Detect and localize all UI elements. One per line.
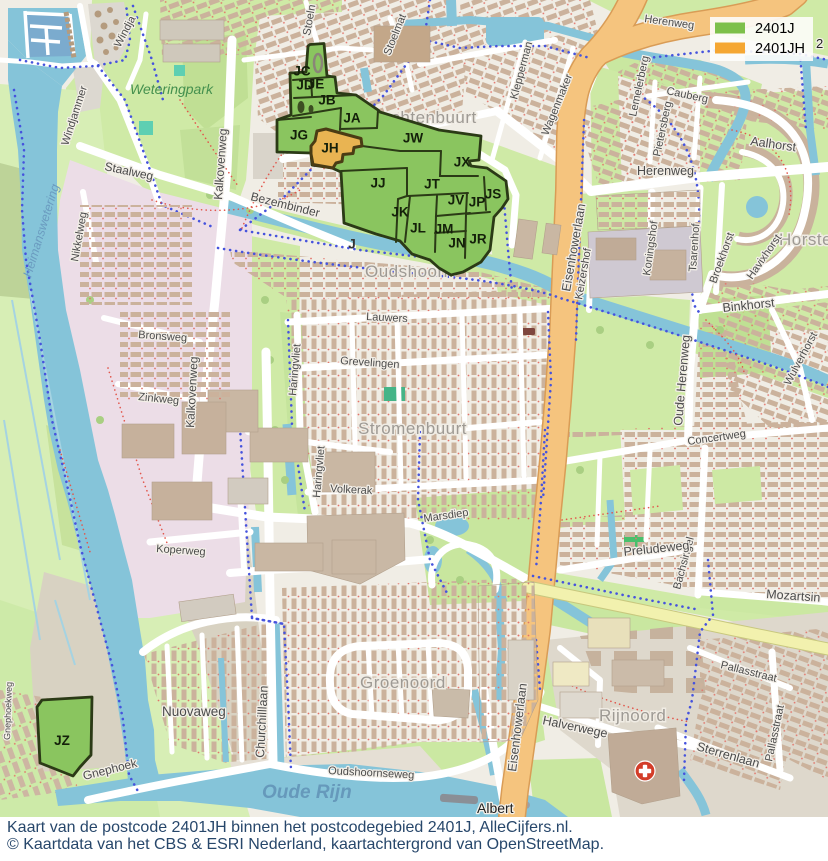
svg-text:JV: JV [448, 193, 465, 208]
svg-text:JK: JK [391, 205, 409, 220]
svg-text:Albert: Albert [477, 800, 514, 816]
svg-text:JE: JE [308, 77, 325, 92]
svg-text:JN: JN [448, 236, 465, 251]
svg-text:JH: JH [321, 141, 338, 156]
svg-text:JW: JW [403, 131, 424, 146]
svg-text:Groenoord: Groenoord [360, 673, 446, 692]
svg-text:JJ: JJ [370, 176, 385, 191]
svg-text:2: 2 [816, 36, 823, 51]
svg-text:Oude Rijn: Oude Rijn [262, 782, 352, 803]
svg-text:JS: JS [485, 187, 502, 202]
svg-text:Volkerak: Volkerak [330, 483, 373, 497]
svg-text:Nuovaweg: Nuovaweg [162, 704, 226, 719]
svg-text:Weteringpark: Weteringpark [130, 81, 214, 97]
svg-text:JB: JB [318, 93, 336, 108]
svg-text:Rijnoord: Rijnoord [599, 706, 666, 725]
svg-text:Herenweg: Herenweg [637, 164, 694, 178]
svg-text:JG: JG [290, 128, 308, 143]
svg-text:JA: JA [343, 111, 361, 126]
svg-text:JX: JX [454, 155, 471, 170]
svg-text:2401J: 2401J [755, 21, 795, 37]
svg-text:Gnephoekweg: Gnephoekweg [2, 682, 14, 740]
svg-text:Lauwers: Lauwers [366, 311, 409, 325]
svg-text:Horstenb: Horstenb [779, 230, 828, 249]
svg-text:JM: JM [435, 222, 454, 237]
svg-text:JR: JR [469, 232, 487, 247]
svg-text:J: J [348, 237, 356, 252]
svg-text:JL: JL [410, 221, 426, 236]
svg-text:JZ: JZ [54, 733, 70, 748]
svg-text:2401JH: 2401JH [755, 41, 805, 57]
svg-text:JP: JP [469, 195, 486, 210]
svg-text:Stromenbuurt: Stromenbuurt [358, 419, 467, 438]
svg-text:JT: JT [424, 177, 441, 192]
